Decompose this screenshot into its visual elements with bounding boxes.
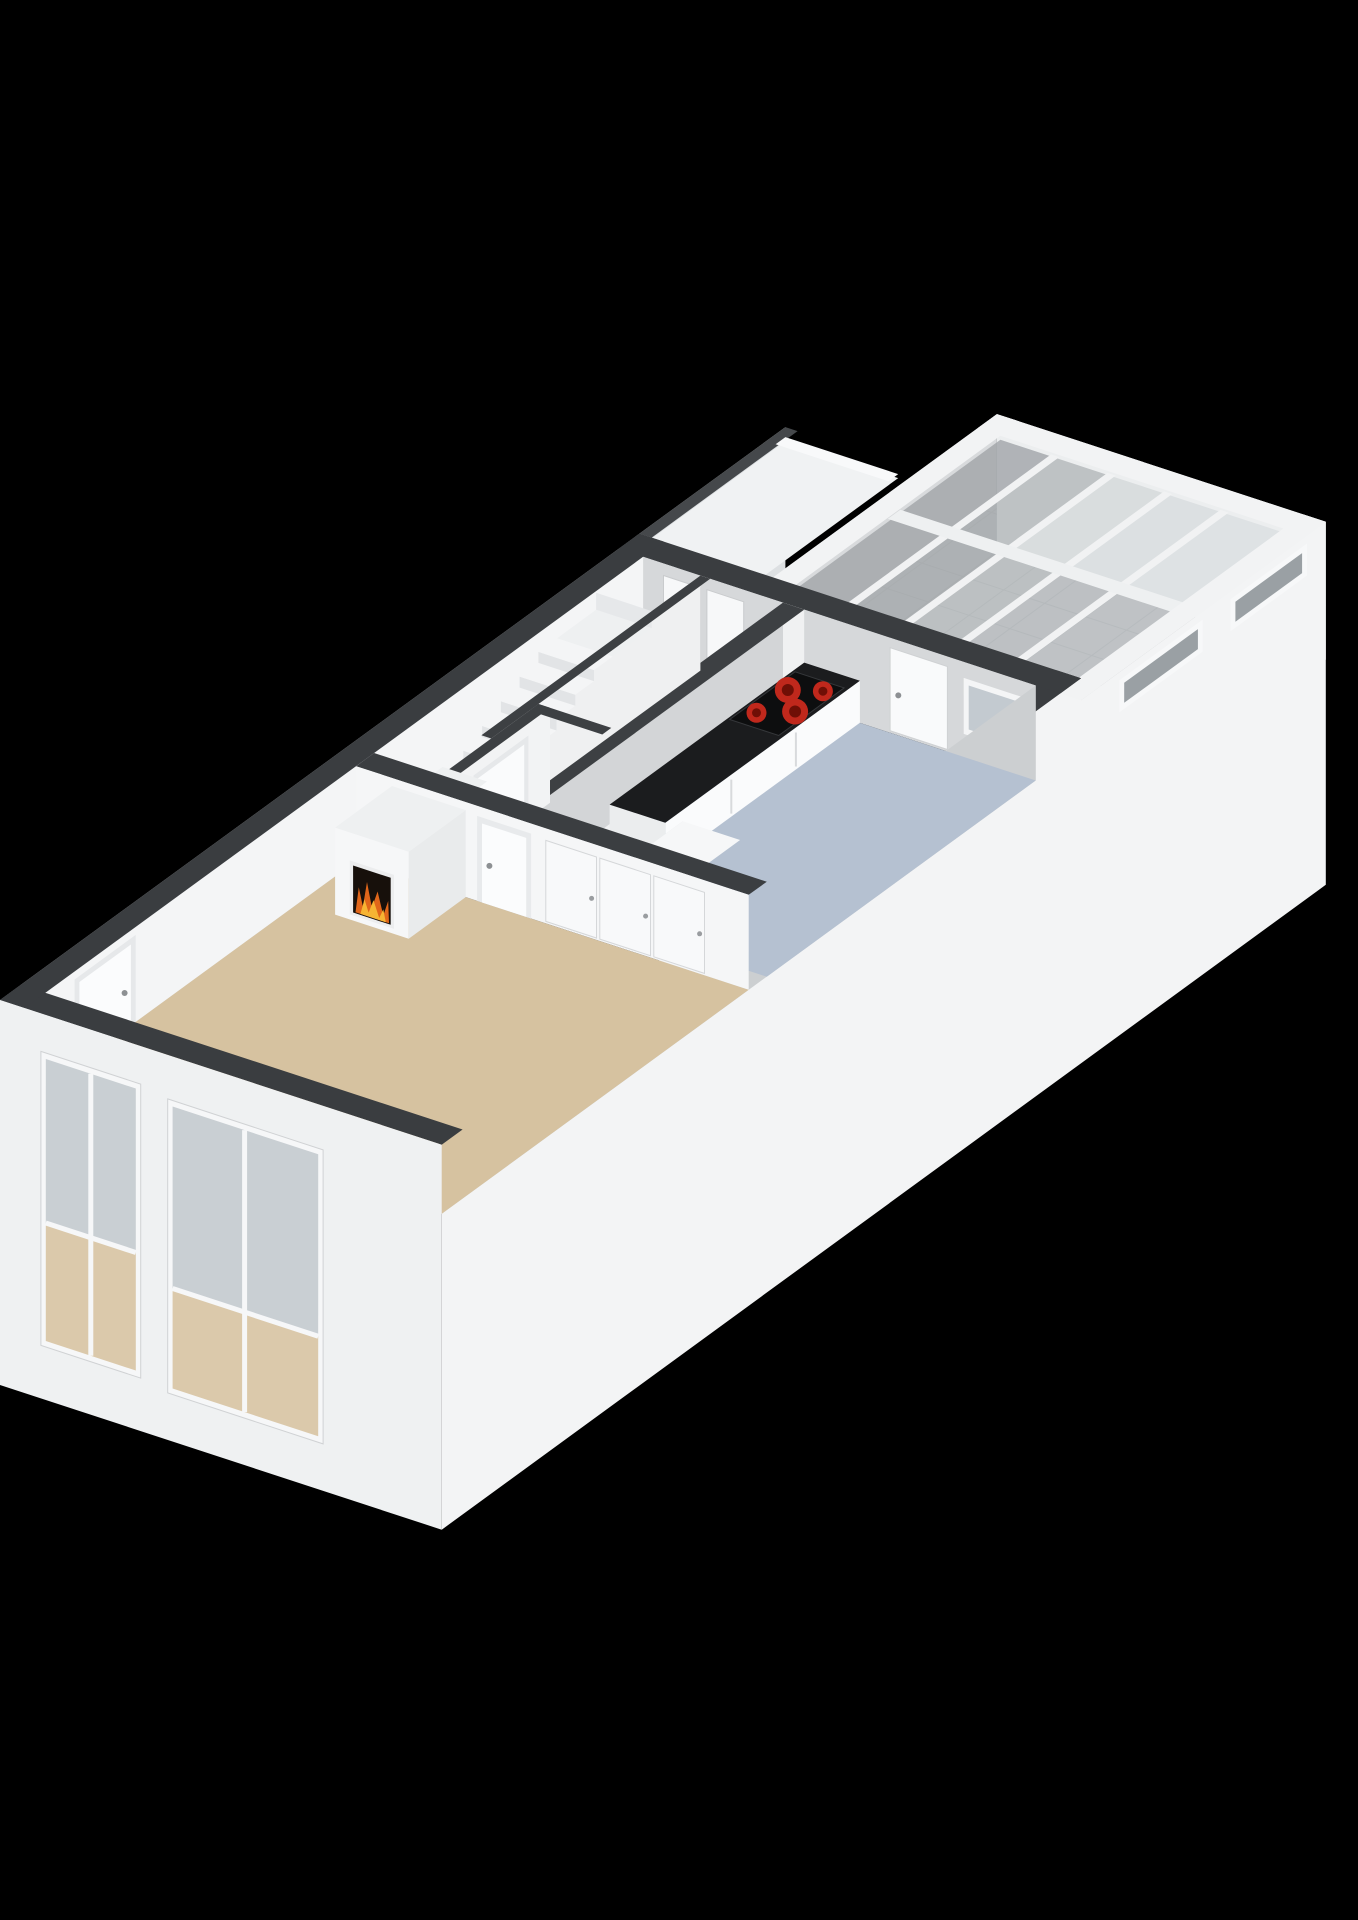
hall-door-panel [482, 824, 526, 917]
floorplan-svg [0, 0, 1358, 1920]
living-closet-handle-2 [643, 914, 648, 919]
cooktop-burner-2-center [752, 708, 761, 717]
kitchen-rear-door-handle [895, 692, 901, 698]
living-closet-handle-1 [589, 896, 594, 901]
front-door-handle [122, 990, 128, 996]
living-closet-handle-3 [697, 931, 702, 936]
cooktop-burner-4-center [789, 706, 801, 718]
floorplan-3d-view [0, 0, 1358, 1920]
cooktop-burner-3-center [818, 687, 827, 696]
living-closet-door-1 [546, 840, 597, 938]
living-closet-door-3 [654, 876, 705, 974]
hall-door-handle [486, 863, 492, 869]
living-closet-door-2 [600, 858, 651, 956]
cooktop-burner-1-center [782, 684, 794, 696]
